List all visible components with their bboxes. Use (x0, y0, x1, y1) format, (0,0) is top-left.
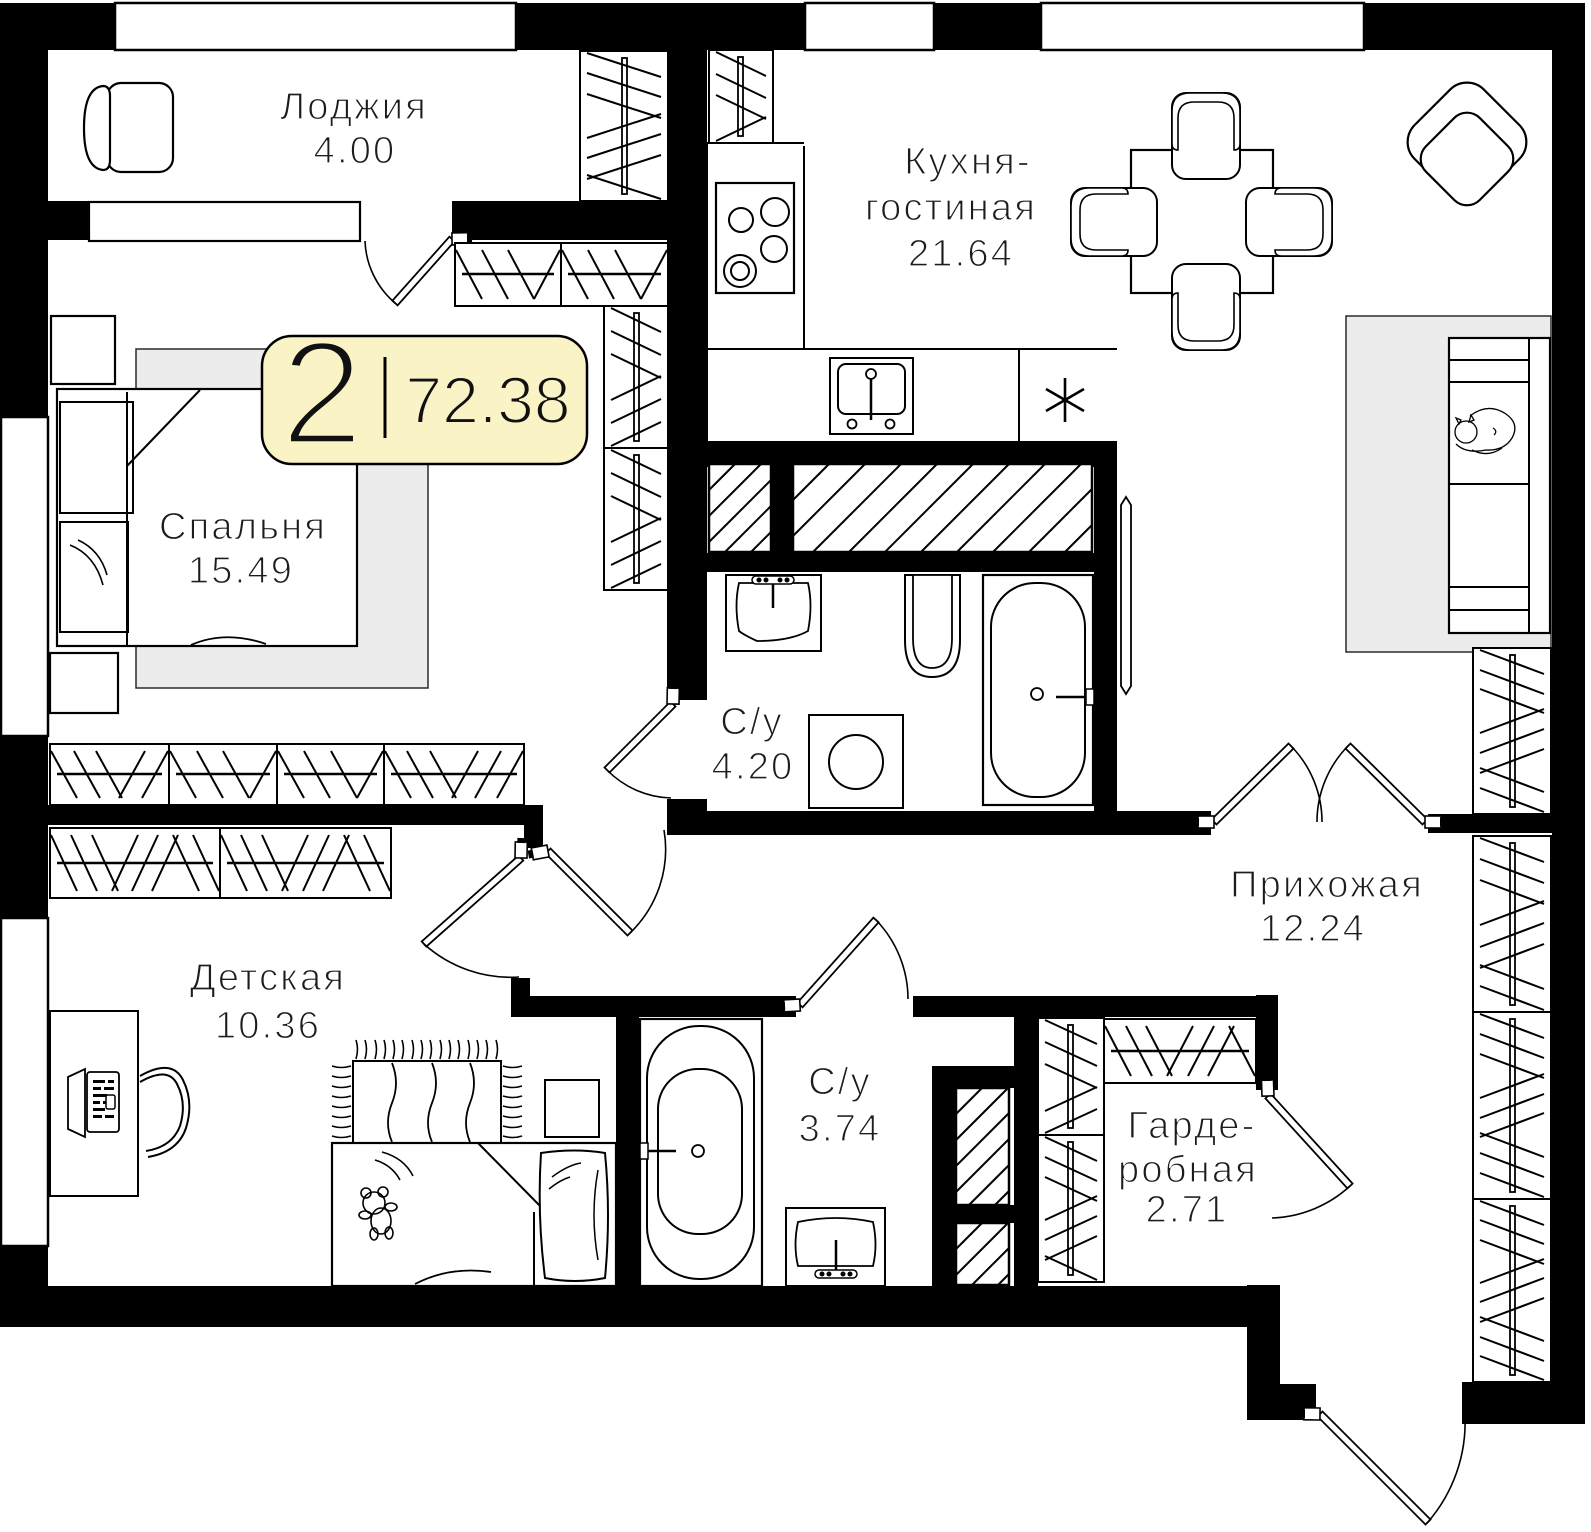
svg-text:С/у: С/у (808, 1061, 872, 1103)
svg-text:Лоджия: Лоджия (280, 86, 428, 128)
svg-text:Спальня: Спальня (159, 506, 327, 548)
svg-text:С/у: С/у (720, 701, 784, 743)
svg-text:2.71: 2.71 (1146, 1189, 1229, 1231)
svg-text:Гарде-: Гарде- (1128, 1105, 1257, 1147)
svg-text:21.64: 21.64 (908, 233, 1014, 275)
svg-text:3.74: 3.74 (799, 1108, 882, 1150)
svg-text:гостиная: гостиная (865, 187, 1037, 229)
svg-text:4.20: 4.20 (712, 746, 795, 788)
svg-text:Детская: Детская (190, 957, 346, 999)
svg-text:Прихожая: Прихожая (1230, 864, 1424, 906)
svg-text:Кухня-: Кухня- (904, 141, 1032, 183)
svg-text:робная: робная (1118, 1149, 1258, 1191)
svg-text:10.36: 10.36 (215, 1005, 321, 1047)
svg-text:72.38: 72.38 (405, 363, 570, 437)
svg-text:15.49: 15.49 (188, 550, 294, 592)
svg-text:12.24: 12.24 (1260, 908, 1366, 950)
svg-text:4.00: 4.00 (314, 130, 397, 172)
svg-text:2: 2 (281, 311, 363, 476)
